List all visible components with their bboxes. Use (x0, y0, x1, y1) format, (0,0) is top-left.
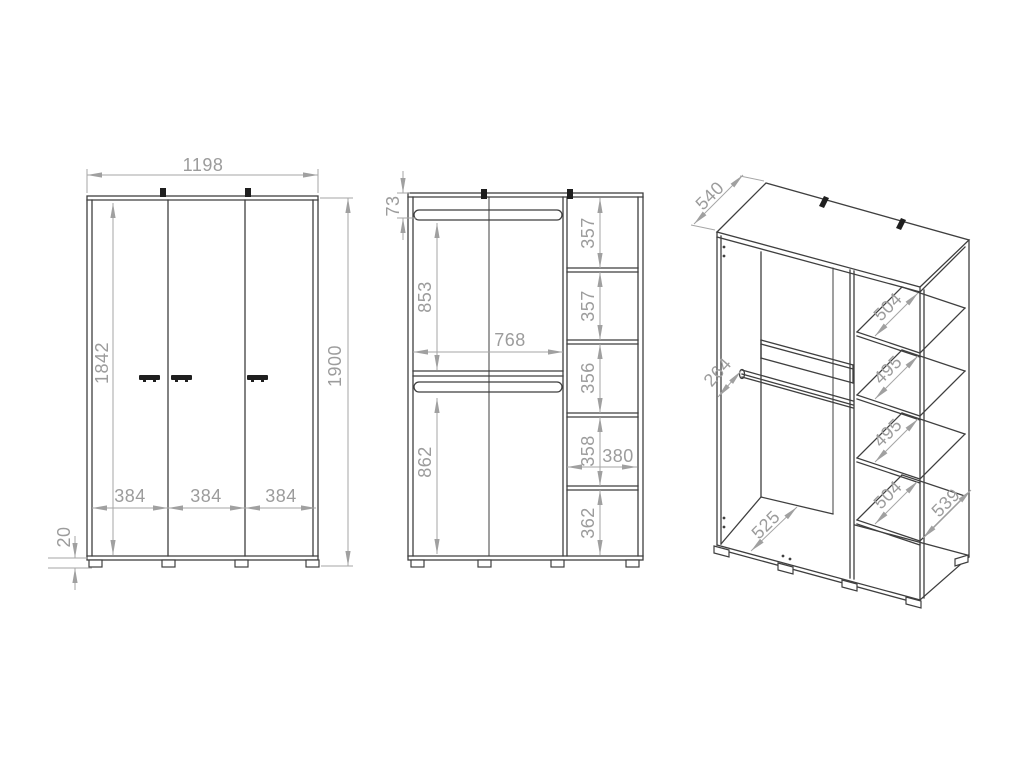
perspective-back-board (761, 340, 853, 383)
dim-interior-width: 768 (494, 330, 526, 350)
dim-perspective-shelf4-depth: 504 (870, 477, 906, 513)
dim-front-door1-width: 384 (114, 486, 146, 506)
dim-interior-cell5: 362 (578, 507, 598, 539)
dim-front-plinth-height: 20 (54, 526, 74, 547)
dim-perspective-bottom-depth: 525 (748, 507, 784, 543)
dim-perspective-depth: 540 (692, 178, 728, 214)
front-view-feet (89, 560, 319, 567)
dim-perspective-side-depth: 539 (928, 485, 964, 521)
interior-view-dimensions: 73 853 768 862 357 357 356 358 362 380 (383, 171, 637, 555)
interior-hanging-rails (414, 210, 562, 392)
dim-front-door2-width: 384 (190, 486, 222, 506)
front-view-dimensions: 1198 1842 1900 384 384 384 20 (48, 155, 353, 590)
dim-front-door-height: 1842 (92, 342, 112, 384)
dim-interior-rail-offset: 73 (383, 195, 403, 216)
wardrobe-technical-drawing: 1198 1842 1900 384 384 384 20 (0, 0, 1031, 773)
dim-interior-cell2: 357 (578, 290, 598, 322)
dim-interior-cell1: 357 (578, 217, 598, 249)
dim-perspective-rail-setback: 264 (700, 354, 736, 391)
dim-perspective-shelf3-depth: 495 (870, 415, 906, 451)
dim-front-door3-width: 384 (265, 486, 297, 506)
perspective-hanging-rail (740, 370, 854, 409)
dim-front-overall-width: 1198 (183, 155, 224, 175)
interior-feet (411, 560, 639, 567)
interior-view-carcass (408, 193, 643, 560)
dim-interior-column-width: 380 (602, 446, 634, 466)
perspective-view-carcass (717, 183, 969, 604)
dim-interior-lower-height: 862 (415, 446, 435, 478)
dim-perspective-shelf2-depth: 495 (870, 352, 906, 388)
dim-interior-cell3: 356 (578, 362, 598, 394)
drawing-sheet: 1198 1842 1900 384 384 384 20 (0, 0, 1031, 773)
perspective-pin-holes (723, 246, 792, 561)
dim-interior-cell4: 358 (578, 435, 598, 467)
front-view-door-handles (139, 375, 268, 382)
dim-interior-upper-height: 853 (415, 281, 435, 313)
perspective-feet (714, 546, 968, 608)
dim-perspective-shelf1-depth: 504 (870, 289, 906, 325)
dim-front-overall-height: 1900 (325, 345, 345, 387)
